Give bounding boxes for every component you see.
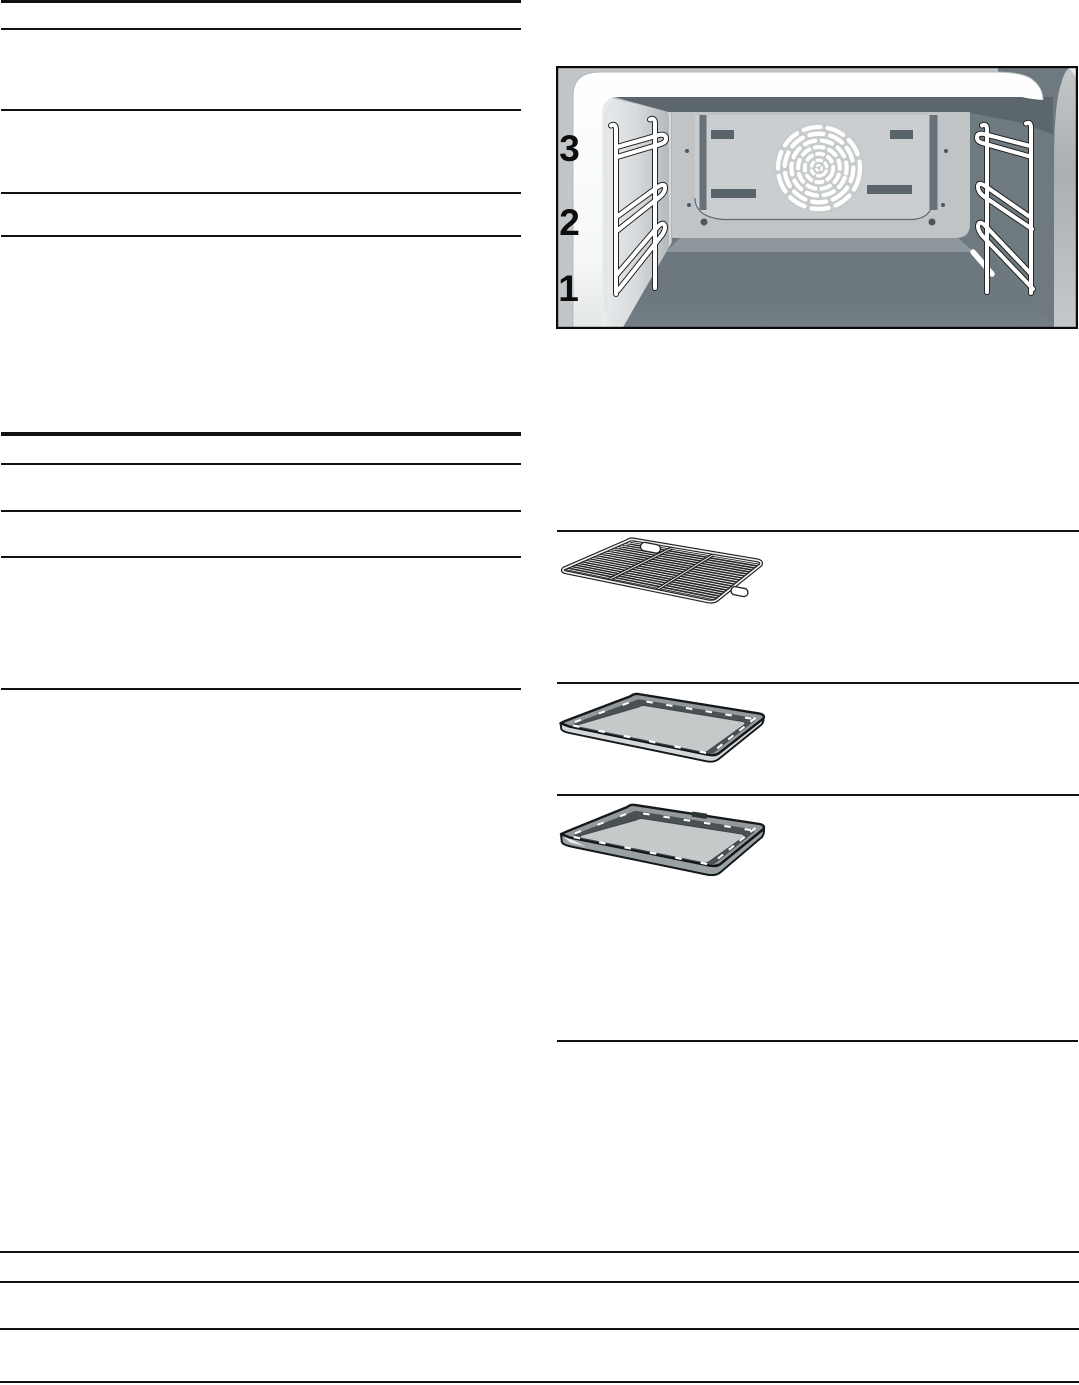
svg-text:3: 3 (559, 128, 580, 169)
svg-text:1: 1 (558, 268, 579, 309)
svg-text:2: 2 (559, 202, 580, 243)
